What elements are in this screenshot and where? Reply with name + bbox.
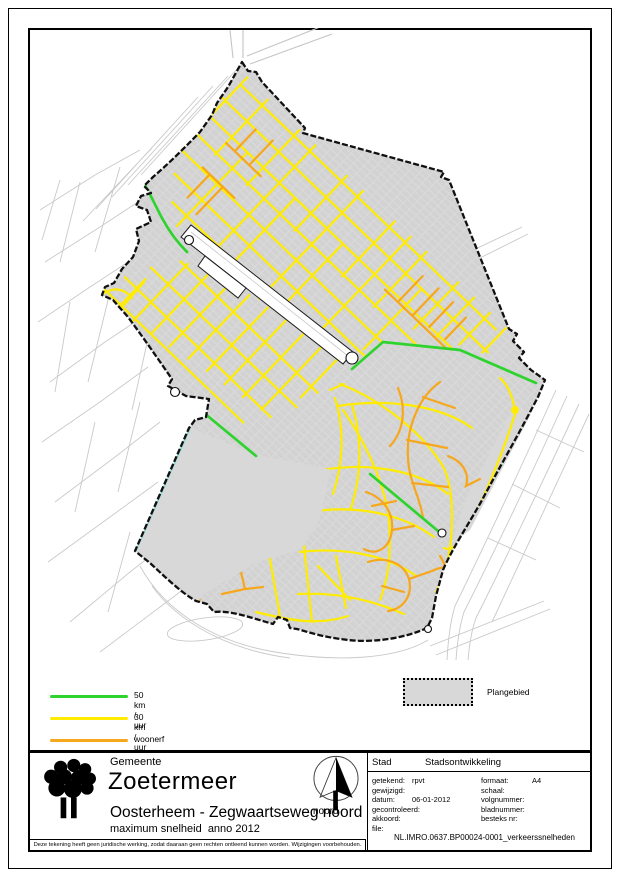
roundabout-yellow xyxy=(511,406,519,414)
north-label: noord xyxy=(313,806,339,817)
org-prefix: Gemeente xyxy=(110,756,161,768)
legend-line-woonerf xyxy=(50,739,128,742)
field-value: rpvt xyxy=(412,776,425,786)
legend-line-50 xyxy=(50,695,128,698)
field-label: akkoord: xyxy=(372,814,401,824)
field-label: datum: xyxy=(372,795,395,805)
imro-file-id: NL.IMRO.0637.BP00024-0001_verkeerssnelhe… xyxy=(394,833,575,842)
plan-sheet: 50 km / uur 30 km / uur woonerf Plangebi… xyxy=(0,0,620,877)
info-grid-divider xyxy=(368,771,592,772)
legend-label-woonerf: woonerf xyxy=(134,734,164,744)
municipality-logo-icon xyxy=(38,757,104,821)
disclaimer: Deze tekening heeft geen juridische werk… xyxy=(29,839,366,851)
department-section: Stadsontwikkeling xyxy=(425,757,501,768)
title-block-vertical-divider xyxy=(367,752,368,852)
project-subtitle: maximum snelheid anno 2012 xyxy=(110,823,260,835)
field-label: gecontroleerd: xyxy=(372,805,420,815)
field-value: A4 xyxy=(532,776,541,786)
field-label: formaat: xyxy=(481,776,509,786)
field-label: schaal: xyxy=(481,786,505,796)
legend-label-30: 30 km / uur xyxy=(134,712,146,752)
field-label: getekend: xyxy=(372,776,405,786)
field-label: file: xyxy=(372,824,384,834)
org-name: Zoetermeer xyxy=(108,768,237,796)
field-value: 06-01-2012 xyxy=(412,795,450,805)
field-label: gewijzigd: xyxy=(372,786,405,796)
department: Stad xyxy=(372,757,392,768)
field-label: besteks nr: xyxy=(481,814,518,824)
plangebied-label: Plangebied xyxy=(487,687,530,697)
title-block-divider xyxy=(28,750,592,753)
legend-line-30 xyxy=(50,717,128,720)
field-label: volgnummer: xyxy=(481,795,524,805)
plangebied-swatch xyxy=(403,678,473,706)
field-label: bladnummer: xyxy=(481,805,525,815)
